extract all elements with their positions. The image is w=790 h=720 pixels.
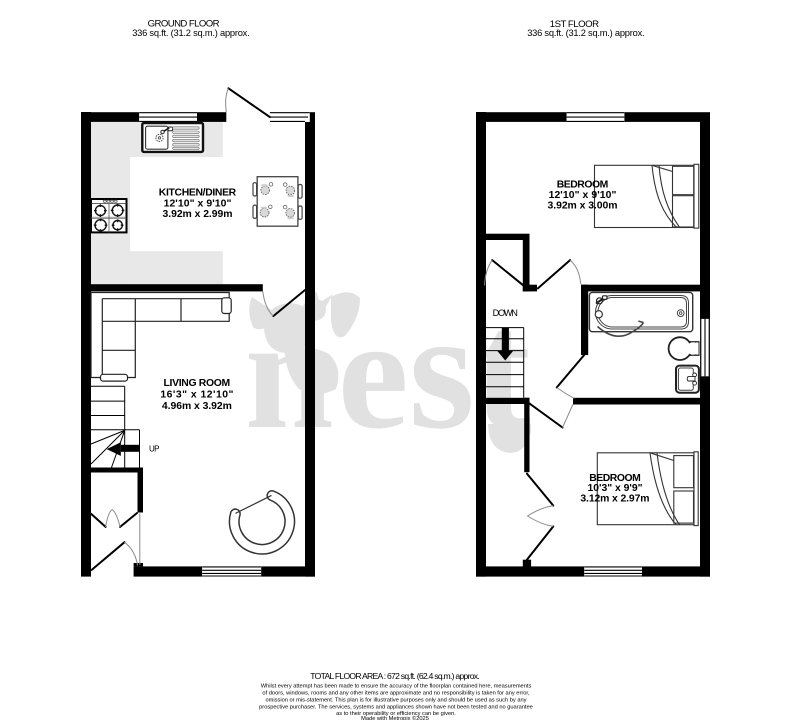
svg-text:omission or mis-statement. Thi: omission or mis-statement. This plan is … bbox=[265, 697, 526, 703]
svg-text:3.12m x 2.97m: 3.12m x 2.97m bbox=[580, 494, 649, 505]
svg-text:4.96m x 3.92m: 4.96m x 3.92m bbox=[162, 401, 232, 412]
svg-text:Made with Metropix ©2025: Made with Metropix ©2025 bbox=[361, 715, 429, 720]
svg-text:3.92m x 2.99m: 3.92m x 2.99m bbox=[163, 209, 233, 220]
svg-text:Whilst every attempt has been: Whilst every attempt has been made to en… bbox=[261, 683, 532, 689]
svg-text:336 sq.ft. (31.2 sq.m.) approx: 336 sq.ft. (31.2 sq.m.) approx. bbox=[132, 28, 250, 38]
svg-text:3.92m x 3.00m: 3.92m x 3.00m bbox=[548, 201, 618, 212]
svg-text:TOTAL FLOOR AREA : 672 sq.ft.: TOTAL FLOOR AREA : 672 sq.ft. (62.4 sq.m… bbox=[310, 671, 479, 681]
svg-text:DOWN: DOWN bbox=[493, 308, 518, 318]
svg-text:LIVING ROOM: LIVING ROOM bbox=[164, 378, 231, 389]
svg-text:16'3" x 12'10": 16'3" x 12'10" bbox=[160, 390, 233, 401]
svg-text:10'3" x 9'9": 10'3" x 9'9" bbox=[588, 483, 643, 494]
svg-text:prospective purchaser. The ser: prospective purchaser. The services, sys… bbox=[259, 704, 533, 710]
svg-text:UP: UP bbox=[149, 445, 160, 454]
svg-text:12'10" x 9'10": 12'10" x 9'10" bbox=[164, 198, 232, 209]
svg-text:336 sq.ft. (31.2 sq.m.) approx: 336 sq.ft. (31.2 sq.m.) approx. bbox=[527, 28, 644, 38]
svg-text:KITCHEN/DINER: KITCHEN/DINER bbox=[159, 188, 237, 199]
svg-text:of doors, windows, rooms and a: of doors, windows, rooms and any other i… bbox=[262, 690, 530, 696]
svg-text:12'10" x 9'10": 12'10" x 9'10" bbox=[549, 190, 617, 201]
